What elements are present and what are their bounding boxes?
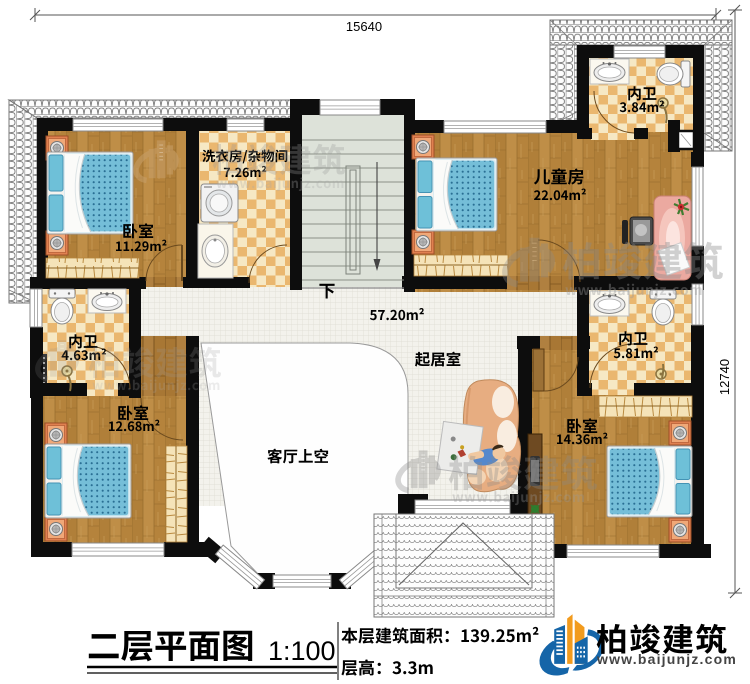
svg-text:www.baijunjz.com: www.baijunjz.com <box>596 651 737 667</box>
svg-text:15640: 15640 <box>346 19 382 34</box>
svg-text:1:100: 1:100 <box>268 636 336 666</box>
svg-text:12740: 12740 <box>717 359 732 395</box>
